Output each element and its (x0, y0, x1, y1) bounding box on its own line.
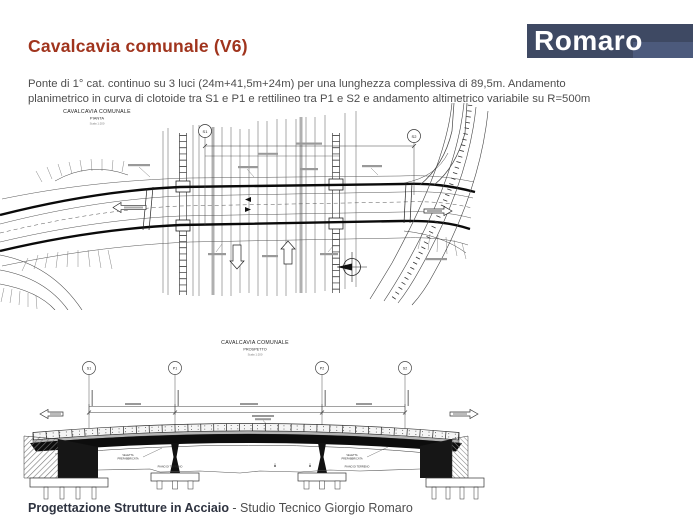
plan-right-roads (370, 103, 488, 305)
north-compass-icon (337, 252, 367, 282)
plan-marker-s2: S2 (412, 134, 418, 139)
elevation-ground (98, 463, 420, 473)
plan-marker-s1: S1 (203, 129, 209, 134)
plan-axes: S1 S2 (199, 125, 421, 226)
elevation-title-block: CAVALCAVIA COMUNALE PROSPETTO Scala 1:20… (221, 340, 289, 357)
elevation-dimension-lines (87, 403, 407, 424)
elevation-labels: VELETTA PREFABBRICATA VELETTA PREFABBRIC… (117, 447, 388, 469)
label-veletta-left-2: PREFABBRICATA (117, 457, 138, 461)
direction-arrow-up (281, 241, 295, 264)
elevation-direction-arrows (40, 410, 478, 419)
elevation-title: CAVALCAVIA COMUNALE (221, 340, 289, 346)
elevation-axes: S1 P1 P2 S2 (83, 362, 412, 429)
elevation-subtitle: PROSPETTO (243, 348, 266, 352)
label-veletta-right-1: VELETTA (346, 453, 358, 457)
elevation-scale: Scala 1:200 (248, 353, 263, 357)
page-title: Cavalcavia comunale (V6) (28, 36, 248, 57)
elevation-svg: CAVALCAVIA COMUNALE PROSPETTO Scala 1:20… (0, 335, 700, 505)
elevation-drawing: CAVALCAVIA COMUNALE PROSPETTO Scala 1:20… (0, 335, 700, 505)
footer: Progettazione Strutture in Acciaio - Stu… (28, 501, 413, 515)
label-veletta-left-1: VELETTA (122, 453, 134, 457)
label-ground-left: PIANO DI TERRENO (158, 465, 183, 469)
label-ground-right: PIANO DI TERRENO (345, 465, 370, 469)
direction-arrow-down (230, 245, 244, 269)
plan-scale: Scala 1:200 (90, 122, 105, 126)
plan-title: CAVALCAVIA COMUNALE (63, 109, 131, 115)
footer-bold-text: Progettazione Strutture in Acciaio (28, 501, 229, 515)
plan-piers (176, 133, 343, 295)
label-veletta-right-2: PREFABBRICATA (341, 457, 362, 461)
plan-drawing: CAVALCAVIA COMUNALE PIANTA Scala 1:200 (0, 103, 700, 310)
plan-svg: CAVALCAVIA COMUNALE PIANTA Scala 1:200 (0, 103, 700, 310)
plan-title-block: CAVALCAVIA COMUNALE PIANTA Scala 1:200 (63, 109, 131, 126)
axis-marker-p1: P1 (173, 367, 177, 371)
axis-marker-s1: S1 (87, 367, 91, 371)
plan-subtitle: PIANTA (90, 116, 104, 121)
description-line-1: Ponte di 1° cat. continuo su 3 luci (24m… (28, 78, 566, 90)
plan-traffic-arrows (113, 203, 452, 270)
axis-marker-p2: P2 (320, 367, 324, 371)
romaro-logo-text: Romaro (527, 24, 693, 57)
romaro-logo: Romaro (527, 24, 693, 58)
footer-regular-text: - Studio Tecnico Giorgio Romaro (229, 501, 413, 515)
axis-marker-s2: S2 (403, 367, 407, 371)
plan-left-approach (0, 159, 128, 310)
description-text: Ponte di 1° cat. continuo su 3 luci (24m… (28, 77, 673, 106)
slide: Cavalcavia comunale (V6) Romaro Ponte di… (0, 0, 700, 525)
